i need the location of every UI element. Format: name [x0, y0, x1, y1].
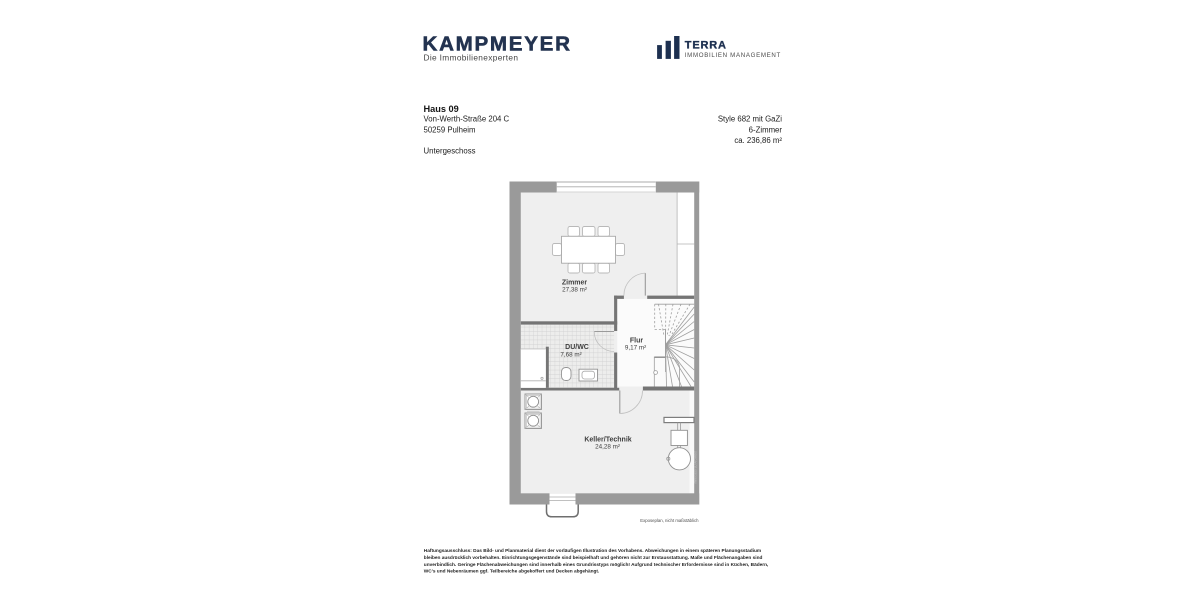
svg-text:WC's und Nebenräumen ggf. Teil: WC's und Nebenräumen ggf. Teilbereiche a…: [424, 569, 600, 575]
svg-text:Haus 09: Haus 09: [424, 104, 459, 114]
svg-text:ca. 236,86 m²: ca. 236,86 m²: [734, 136, 782, 145]
svg-text:Von-Werth-Straße 204 C: Von-Werth-Straße 204 C: [424, 115, 510, 124]
svg-text:DU/WC: DU/WC: [565, 344, 589, 351]
svg-text:50259 Pulheim: 50259 Pulheim: [424, 126, 476, 135]
svg-text:Untergeschoss: Untergeschoss: [424, 147, 476, 156]
svg-text:Flur: Flur: [630, 337, 643, 344]
svg-text:24,28 m²: 24,28 m²: [595, 444, 620, 451]
svg-text:IMMOBILIEN MANAGEMENT: IMMOBILIEN MANAGEMENT: [685, 52, 781, 59]
svg-text:Exposeplan, nicht maßstäblich: Exposeplan, nicht maßstäblich: [640, 518, 699, 523]
svg-text:Die Immobilienexperten: Die Immobilienexperten: [424, 53, 519, 63]
svg-text:immocado 3D Architekt: immocado 3D Architekt: [694, 451, 698, 484]
svg-text:Style 682 mit GaZi: Style 682 mit GaZi: [718, 115, 782, 124]
svg-text:9,17 m²: 9,17 m²: [625, 345, 646, 352]
svg-text:bleiben ausdrücklich vorbehalt: bleiben ausdrücklich vorbehalten. Einric…: [424, 555, 763, 561]
svg-text:7,68 m²: 7,68 m²: [560, 351, 581, 358]
svg-text:Zimmer: Zimmer: [562, 280, 588, 287]
svg-text:TERRA: TERRA: [685, 40, 727, 52]
svg-text:unverbindlich. Geringe Flächen: unverbindlich. Geringe Flächenabweichung…: [424, 562, 769, 568]
svg-text:27,38 m²: 27,38 m²: [562, 287, 587, 294]
svg-text:Keller/Technik: Keller/Technik: [584, 436, 631, 443]
svg-text:6-Zimmer: 6-Zimmer: [749, 126, 783, 135]
svg-text:Haftungsausschluss: Das Bild-: Haftungsausschluss: Das Bild- und Planma…: [424, 548, 761, 554]
